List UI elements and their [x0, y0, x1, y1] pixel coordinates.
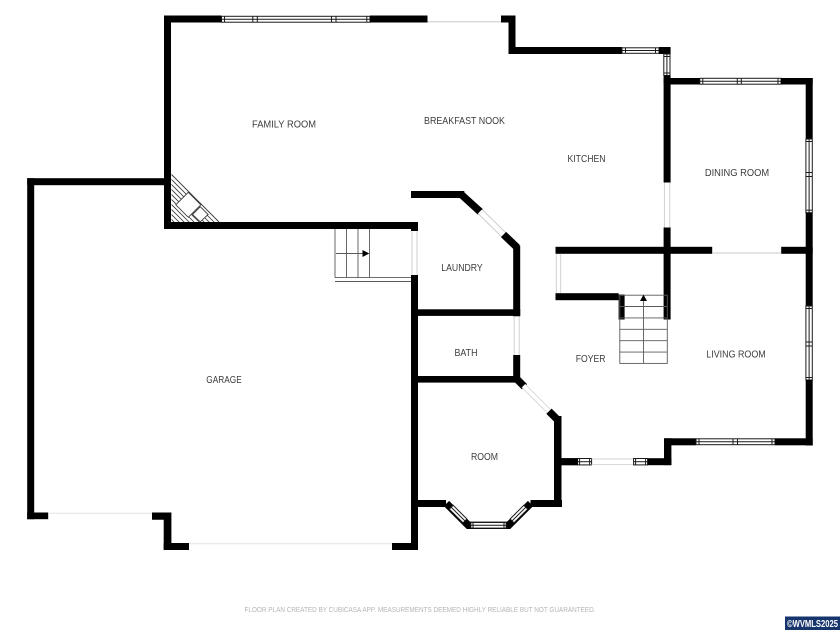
svg-text:ROOM: ROOM: [471, 452, 498, 463]
svg-text:FOYER: FOYER: [576, 354, 606, 365]
svg-text:FAMILY ROOM: FAMILY ROOM: [252, 119, 316, 130]
svg-text:GARAGE: GARAGE: [206, 375, 242, 386]
svg-text:BREAKFAST NOOK: BREAKFAST NOOK: [424, 116, 505, 127]
svg-text:BATH: BATH: [455, 348, 478, 359]
svg-text:LAUNDRY: LAUNDRY: [441, 263, 483, 274]
svg-text:DINING ROOM: DINING ROOM: [705, 168, 769, 179]
svg-text:KITCHEN: KITCHEN: [568, 154, 606, 165]
svg-text:©WVMLS2025: ©WVMLS2025: [787, 619, 838, 630]
svg-text:FLOOR PLAN CREATED BY CUBICASA: FLOOR PLAN CREATED BY CUBICASA APP. MEAS…: [245, 605, 596, 614]
svg-text:LIVING ROOM: LIVING ROOM: [706, 350, 766, 361]
